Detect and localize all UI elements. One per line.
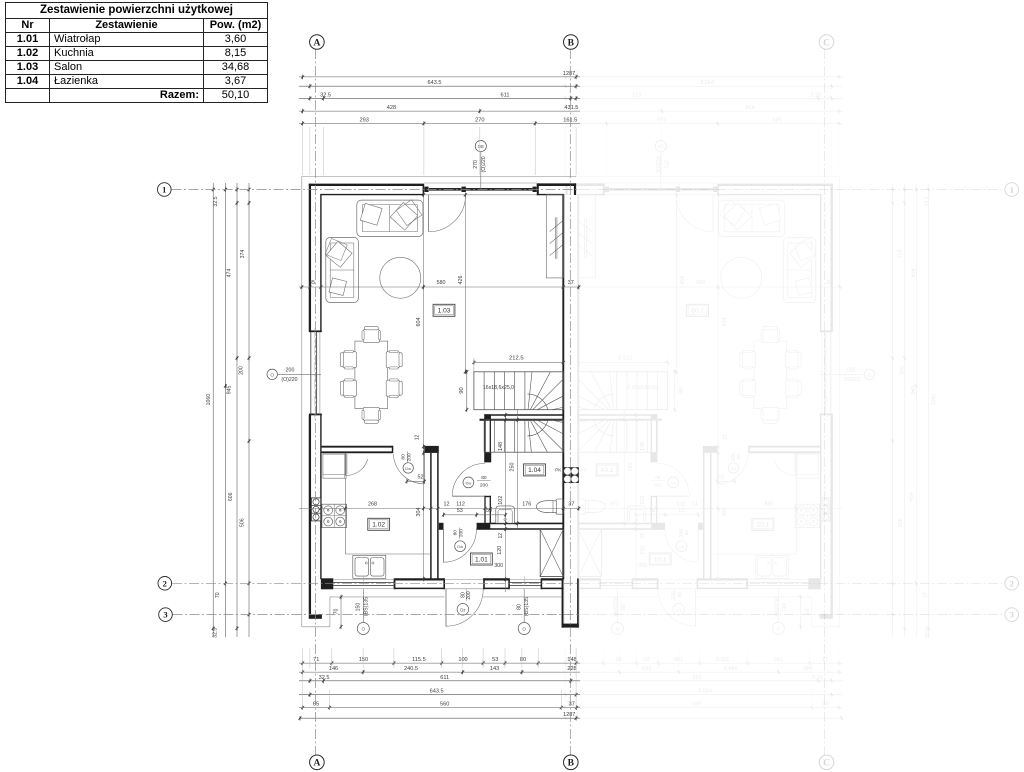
- svg-text:606: 606: [228, 492, 234, 501]
- svg-text:643.5: 643.5: [428, 80, 442, 86]
- svg-text:374: 374: [240, 250, 246, 259]
- svg-text:212.5: 212.5: [509, 356, 524, 362]
- svg-text:270: 270: [475, 117, 484, 123]
- svg-text:146: 146: [329, 666, 338, 672]
- svg-text:OB: OB: [478, 144, 484, 149]
- svg-text:C: C: [823, 759, 830, 769]
- svg-text:304: 304: [416, 508, 422, 517]
- svg-text:428: 428: [387, 105, 396, 111]
- svg-text:O: O: [522, 627, 526, 632]
- svg-text:Dz: Dz: [460, 607, 465, 612]
- svg-text:580: 580: [437, 280, 446, 286]
- svg-text:16x18,6x25,0: 16x18,6x25,0: [483, 385, 514, 391]
- svg-text:90: 90: [459, 387, 465, 393]
- svg-text:(O)220: (O)220: [281, 377, 297, 383]
- svg-text:643.5: 643.5: [430, 689, 444, 695]
- svg-text:604: 604: [416, 318, 422, 327]
- svg-text:Dw: Dw: [405, 466, 411, 471]
- svg-text:80: 80: [517, 604, 523, 610]
- svg-text:32.5: 32.5: [319, 675, 330, 681]
- svg-text:148: 148: [498, 442, 504, 451]
- svg-text:1: 1: [1010, 185, 1014, 195]
- svg-text:80: 80: [481, 475, 487, 481]
- svg-text:200: 200: [286, 368, 295, 374]
- svg-text:B: B: [568, 759, 575, 769]
- svg-text:100: 100: [458, 657, 467, 663]
- svg-text:270: 270: [473, 160, 479, 169]
- svg-text:176: 176: [522, 502, 531, 508]
- svg-text:O: O: [362, 627, 366, 632]
- svg-text:Dw: Dw: [466, 480, 472, 485]
- svg-text:1.02: 1.02: [372, 522, 385, 529]
- svg-text:1.01: 1.01: [475, 556, 488, 563]
- svg-text:250: 250: [510, 463, 516, 472]
- svg-text:611: 611: [440, 675, 449, 681]
- svg-text:53: 53: [457, 508, 463, 514]
- svg-text:B: B: [568, 38, 575, 48]
- svg-text:Dw: Dw: [457, 544, 463, 549]
- svg-text:150: 150: [359, 657, 368, 663]
- svg-text:12: 12: [415, 435, 421, 441]
- svg-text:560: 560: [440, 702, 449, 708]
- svg-text:426: 426: [458, 276, 464, 285]
- svg-text:80: 80: [520, 657, 526, 663]
- svg-text:PK: PK: [555, 468, 562, 473]
- svg-text:(O)220: (O)220: [481, 156, 487, 172]
- svg-text:70: 70: [215, 592, 221, 598]
- svg-text:115.5: 115.5: [412, 657, 426, 663]
- svg-text:O: O: [270, 372, 274, 377]
- svg-text:A: A: [313, 38, 320, 48]
- svg-text:474: 474: [227, 269, 233, 278]
- svg-text:268: 268: [368, 502, 377, 508]
- svg-text:(BS)135: (BS)135: [524, 597, 530, 616]
- svg-text:1.04: 1.04: [528, 467, 541, 474]
- svg-text:506: 506: [240, 518, 246, 527]
- svg-text:71: 71: [313, 657, 319, 663]
- svg-text:150: 150: [356, 603, 362, 612]
- svg-text:A: A: [313, 759, 320, 769]
- svg-text:120: 120: [497, 546, 503, 555]
- svg-text:12: 12: [444, 502, 450, 508]
- svg-text:1060: 1060: [206, 394, 212, 406]
- svg-text:70: 70: [333, 609, 339, 615]
- svg-text:3: 3: [1010, 610, 1014, 620]
- svg-text:3: 3: [163, 610, 167, 620]
- svg-text:200: 200: [238, 366, 244, 375]
- svg-text:52: 52: [418, 475, 424, 481]
- svg-text:59: 59: [486, 508, 492, 514]
- svg-text:112: 112: [456, 502, 465, 508]
- svg-text:945: 945: [227, 385, 233, 394]
- svg-text:102: 102: [498, 496, 504, 505]
- svg-text:65: 65: [313, 702, 319, 708]
- svg-text:240.5: 240.5: [404, 666, 418, 672]
- svg-text:53: 53: [492, 657, 498, 663]
- svg-text:45: 45: [309, 280, 315, 286]
- svg-text:1.03: 1.03: [438, 308, 451, 315]
- svg-text:C: C: [823, 38, 830, 48]
- svg-text:2: 2: [163, 578, 167, 588]
- svg-text:32.5: 32.5: [212, 628, 218, 638]
- svg-text:143: 143: [490, 666, 499, 672]
- svg-text:293: 293: [360, 117, 369, 123]
- svg-text:80: 80: [401, 454, 407, 460]
- svg-text:300: 300: [494, 563, 503, 569]
- svg-text:(BS)135: (BS)135: [363, 597, 369, 616]
- svg-text:1: 1: [162, 185, 166, 195]
- svg-text:80: 80: [453, 530, 459, 536]
- svg-text:611: 611: [501, 92, 510, 98]
- svg-text:32.5: 32.5: [213, 196, 219, 206]
- svg-text:2: 2: [1010, 578, 1014, 588]
- svg-text:32.5: 32.5: [320, 92, 331, 98]
- svg-text:12: 12: [498, 533, 504, 539]
- svg-text:200: 200: [480, 483, 488, 489]
